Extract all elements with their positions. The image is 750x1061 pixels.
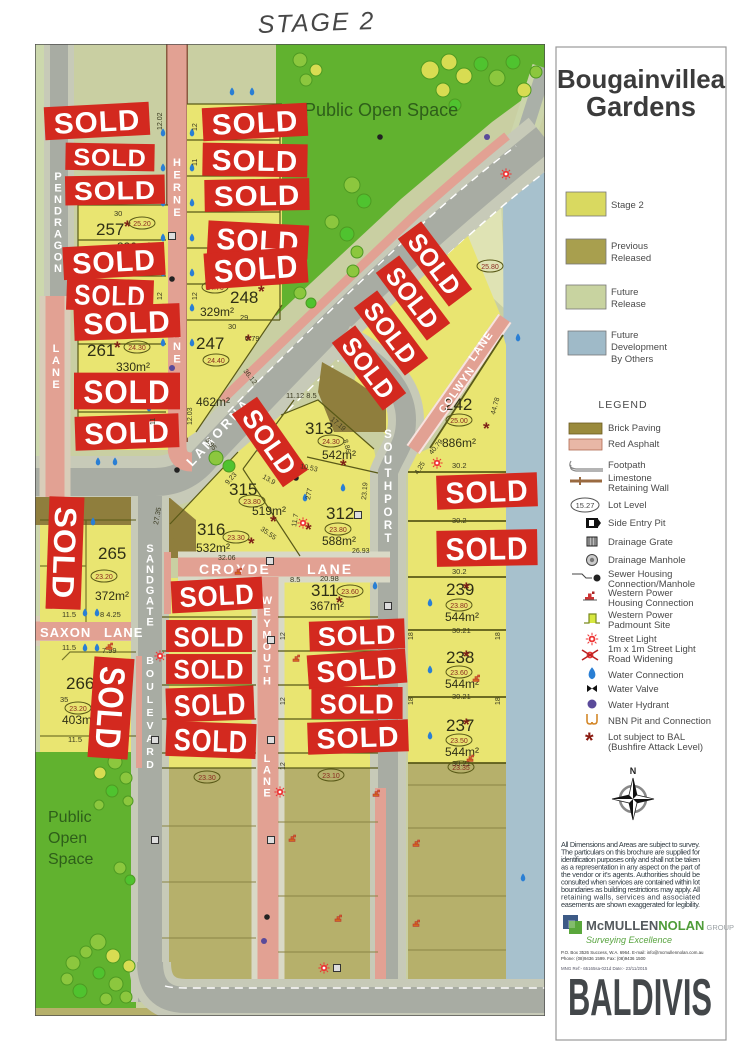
svg-text:*: * xyxy=(248,534,255,553)
svg-text:Footpath: Footpath xyxy=(608,460,646,471)
svg-text:544m²: 544m² xyxy=(445,745,479,759)
svg-text:Space: Space xyxy=(48,851,93,868)
svg-text:SAXON: SAXON xyxy=(40,625,91,640)
svg-text:519m²: 519m² xyxy=(252,504,286,518)
svg-text:LANE: LANE xyxy=(104,625,143,640)
svg-text:0.79: 0.79 xyxy=(245,334,260,343)
svg-text:*: * xyxy=(270,512,277,531)
svg-text:544m²: 544m² xyxy=(445,610,479,624)
svg-text:23.30: 23.30 xyxy=(198,775,216,782)
svg-text:Side Entry Pit: Side Entry Pit xyxy=(608,518,666,529)
svg-text:Previous: Previous xyxy=(611,241,648,252)
svg-text:*: * xyxy=(124,217,131,236)
svg-text:11.5: 11.5 xyxy=(68,735,82,744)
svg-text:Future: Future xyxy=(611,330,638,341)
svg-text:32.06: 32.06 xyxy=(218,555,236,562)
svg-text:*: * xyxy=(114,338,121,357)
svg-text:12: 12 xyxy=(280,762,287,770)
svg-text:18: 18 xyxy=(495,632,502,640)
svg-text:Public: Public xyxy=(48,809,92,826)
svg-text:532m²: 532m² xyxy=(196,541,230,555)
svg-text:Surveying Excellence: Surveying Excellence xyxy=(586,935,672,945)
svg-text:329m²: 329m² xyxy=(200,305,234,319)
svg-text:HERNE: HERNE xyxy=(173,157,181,219)
svg-text:*: * xyxy=(463,715,470,734)
svg-text:NBN Pit and Connection: NBN Pit and Connection xyxy=(608,716,711,727)
svg-text:30.21: 30.21 xyxy=(452,626,471,635)
svg-text:SANDGATE: SANDGATE xyxy=(146,543,155,629)
svg-text:Development: Development xyxy=(611,342,667,353)
svg-text:35: 35 xyxy=(60,695,68,704)
svg-text:30.2: 30.2 xyxy=(452,461,467,470)
svg-text:N: N xyxy=(630,766,637,776)
svg-text:PENDRAGON: PENDRAGON xyxy=(54,171,63,275)
svg-text:12: 12 xyxy=(192,123,199,131)
svg-text:Water Hydrant: Water Hydrant xyxy=(608,700,669,711)
svg-text:24.30: 24.30 xyxy=(128,345,146,352)
svg-text:23.80: 23.80 xyxy=(329,527,347,534)
svg-text:12.02: 12.02 xyxy=(157,112,164,130)
svg-text:Release: Release xyxy=(611,299,646,310)
svg-text:372m²: 372m² xyxy=(95,589,129,603)
svg-text:12: 12 xyxy=(157,292,164,300)
svg-text:8.5: 8.5 xyxy=(290,575,300,584)
svg-text:30.21: 30.21 xyxy=(452,692,471,701)
svg-text:easements are shown exaggerate: easements are shown exaggerated for legi… xyxy=(561,900,700,909)
svg-text:23.80: 23.80 xyxy=(450,603,468,610)
svg-text:23.50: 23.50 xyxy=(450,738,468,745)
svg-text:18: 18 xyxy=(495,697,502,705)
svg-text:312: 312 xyxy=(326,504,354,523)
svg-text:SOUTHPORT: SOUTHPORT xyxy=(384,429,393,545)
svg-text:Gardens: Gardens xyxy=(586,91,696,122)
svg-text:23.20: 23.20 xyxy=(95,574,113,581)
svg-text:15.27: 15.27 xyxy=(576,501,595,510)
svg-text:25.20: 25.20 xyxy=(133,221,151,228)
svg-text:247: 247 xyxy=(196,334,224,353)
svg-text:Housing Connection: Housing Connection xyxy=(608,598,694,609)
svg-text:588m²: 588m² xyxy=(322,534,356,548)
svg-text:30: 30 xyxy=(228,322,236,331)
svg-text:12: 12 xyxy=(280,632,287,640)
svg-text:24.40: 24.40 xyxy=(207,358,225,365)
svg-text:330m²: 330m² xyxy=(116,360,150,374)
svg-text:BALDIVIS: BALDIVIS xyxy=(568,969,712,1027)
svg-text:29: 29 xyxy=(240,313,248,322)
svg-text:*: * xyxy=(463,579,470,598)
svg-text:12: 12 xyxy=(192,292,199,300)
svg-text:11.5: 11.5 xyxy=(62,610,76,619)
svg-text:18: 18 xyxy=(408,697,415,705)
svg-text:265: 265 xyxy=(98,544,126,563)
svg-text:462m²: 462m² xyxy=(196,395,230,409)
svg-text:Brick Paving: Brick Paving xyxy=(608,423,661,434)
svg-text:Red Asphalt: Red Asphalt xyxy=(608,439,660,450)
svg-text:By Others: By Others xyxy=(611,354,653,365)
svg-text:Road Widening: Road Widening xyxy=(608,654,673,665)
svg-text:23.35: 23.35 xyxy=(452,765,470,772)
svg-text:*: * xyxy=(336,593,343,612)
svg-text:Padmount Site: Padmount Site xyxy=(608,620,670,631)
svg-text:239: 239 xyxy=(446,580,474,599)
svg-text:26.93: 26.93 xyxy=(352,548,370,555)
svg-text:11: 11 xyxy=(192,159,199,166)
svg-text:*: * xyxy=(463,647,470,666)
svg-text:Drainage Manhole: Drainage Manhole xyxy=(608,555,686,566)
svg-text:*: * xyxy=(340,456,347,475)
svg-text:311: 311 xyxy=(311,581,338,600)
svg-text:Stage 2: Stage 2 xyxy=(611,200,644,211)
svg-text:25.00: 25.00 xyxy=(450,418,468,425)
svg-text:23.10: 23.10 xyxy=(322,773,340,780)
svg-text:(Bushfire Attack Level): (Bushfire Attack Level) xyxy=(608,742,703,753)
svg-text:12.03: 12.03 xyxy=(187,407,194,425)
svg-text:30.2: 30.2 xyxy=(452,516,467,525)
svg-text:886m²: 886m² xyxy=(442,436,476,450)
svg-text:Phone: (08)9436 1599. Fax: (08: Phone: (08)9436 1599. Fax: (08)9436 1500 xyxy=(561,956,646,961)
svg-text:266: 266 xyxy=(66,674,94,693)
svg-text:237: 237 xyxy=(446,716,474,735)
svg-text:Open: Open xyxy=(48,830,87,847)
svg-text:Future: Future xyxy=(611,287,638,298)
svg-text:248: 248 xyxy=(230,288,258,307)
svg-text:Drainage Grate: Drainage Grate xyxy=(608,537,673,548)
svg-text:*: * xyxy=(483,419,490,438)
svg-text:23.20: 23.20 xyxy=(69,706,87,713)
svg-text:24.30: 24.30 xyxy=(322,439,340,446)
svg-text:23.60: 23.60 xyxy=(341,589,359,596)
svg-text:*: * xyxy=(585,728,594,753)
svg-text:Public Open Space: Public Open Space xyxy=(304,100,458,120)
svg-text:238: 238 xyxy=(446,648,474,667)
svg-text:LANE: LANE xyxy=(263,753,271,800)
svg-text:23.60: 23.60 xyxy=(450,670,468,677)
svg-text:P.O. Box 3526 Success, W.A. 69: P.O. Box 3526 Success, W.A. 6964. E-mail… xyxy=(561,950,704,955)
svg-text:18: 18 xyxy=(408,632,415,640)
svg-text:30: 30 xyxy=(114,209,122,218)
svg-text:Lot Level: Lot Level xyxy=(608,500,647,511)
svg-text:Water Valve: Water Valve xyxy=(608,684,659,695)
svg-text:316: 316 xyxy=(197,520,225,539)
svg-text:11.5: 11.5 xyxy=(62,643,76,652)
svg-text:Released: Released xyxy=(611,253,651,264)
svg-text:25.80: 25.80 xyxy=(481,264,499,271)
svg-text:STAGE 2: STAGE 2 xyxy=(257,7,376,39)
svg-text:BOULEVARD: BOULEVARD xyxy=(146,655,154,771)
svg-text:LANE: LANE xyxy=(307,561,353,577)
svg-text:11.12 8.5: 11.12 8.5 xyxy=(286,391,317,400)
svg-text:Retaining Wall: Retaining Wall xyxy=(608,483,669,494)
svg-text:LEGEND: LEGEND xyxy=(598,399,647,411)
svg-text:30.2: 30.2 xyxy=(452,567,467,576)
svg-text:8 4.25: 8 4.25 xyxy=(100,610,121,619)
svg-text:LANE: LANE xyxy=(52,343,60,391)
svg-text:257: 257 xyxy=(96,220,124,239)
svg-text:Bougainvillea: Bougainvillea xyxy=(557,64,726,94)
svg-text:Water Connection: Water Connection xyxy=(608,670,684,681)
svg-text:11: 11 xyxy=(150,418,157,425)
svg-text:12: 12 xyxy=(280,697,287,705)
svg-text:261: 261 xyxy=(87,341,115,360)
